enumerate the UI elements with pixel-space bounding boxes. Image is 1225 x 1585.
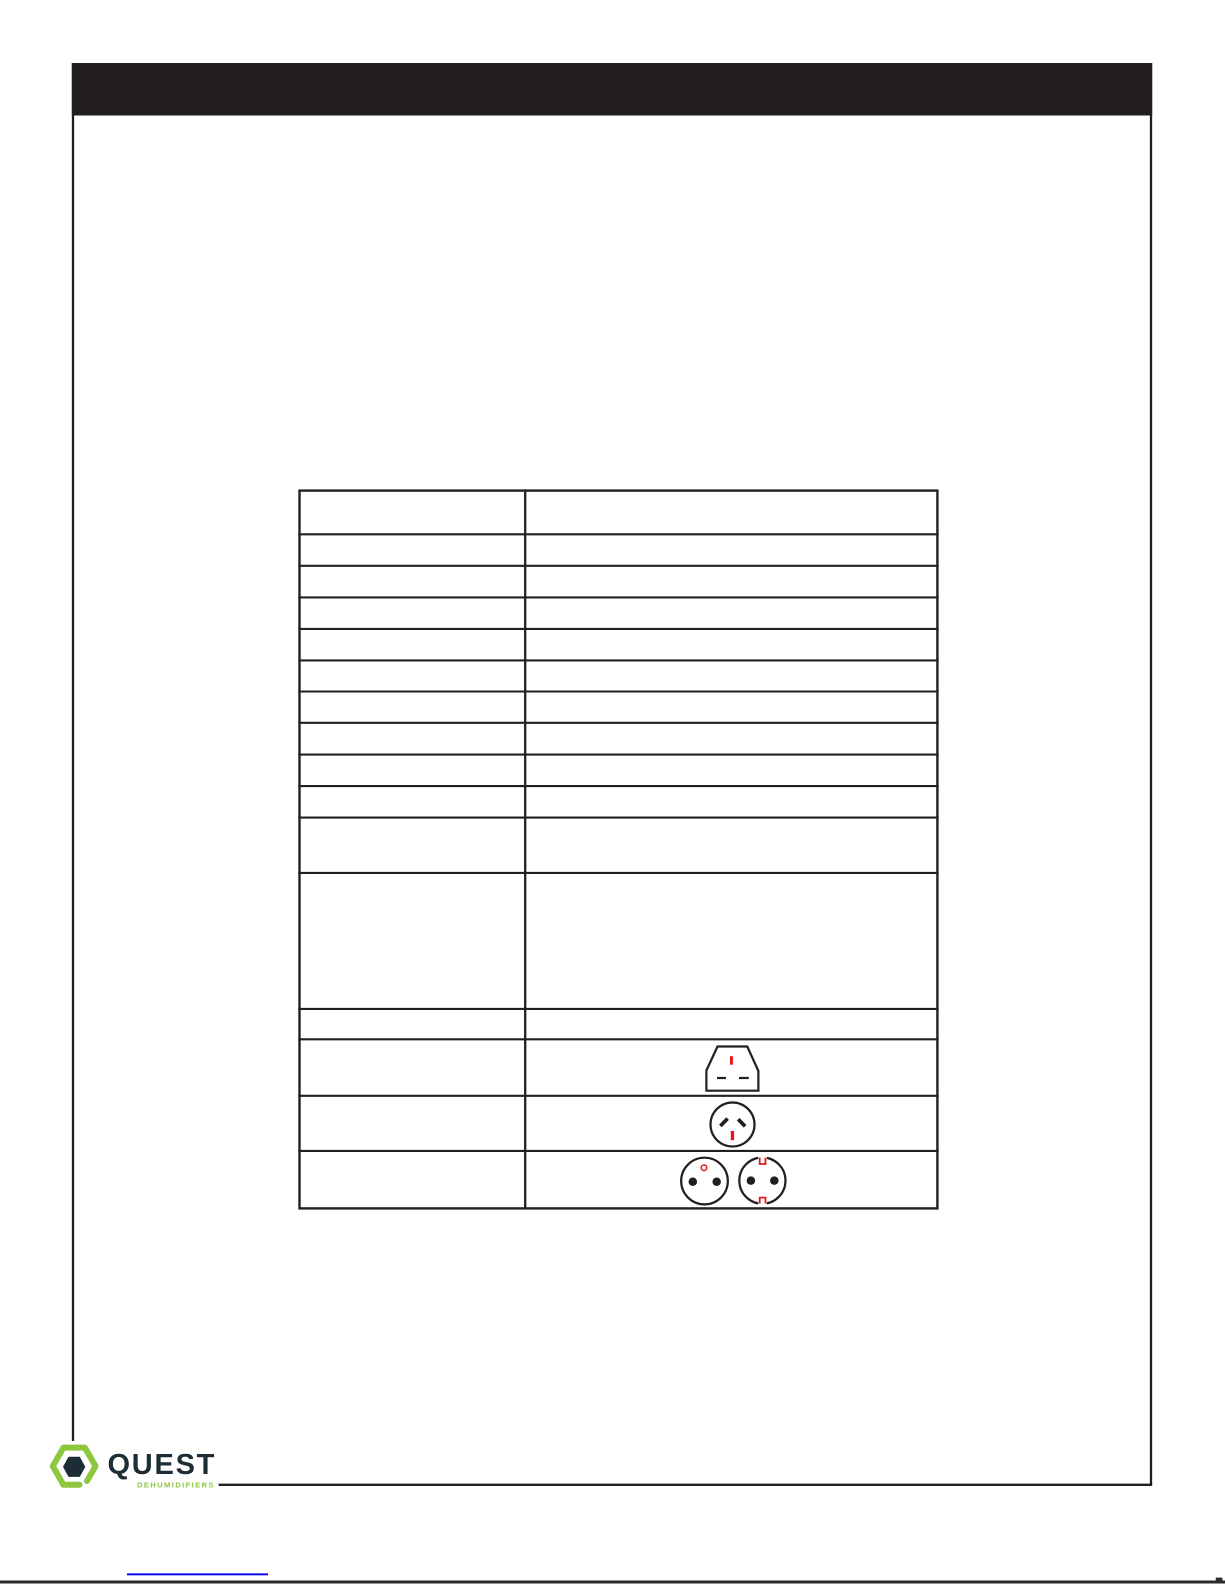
svg-text:QUEST: QUEST [108, 1449, 217, 1481]
svg-text:DEHUMIDIFIERS: DEHUMIDIFIERS [137, 1480, 215, 1489]
